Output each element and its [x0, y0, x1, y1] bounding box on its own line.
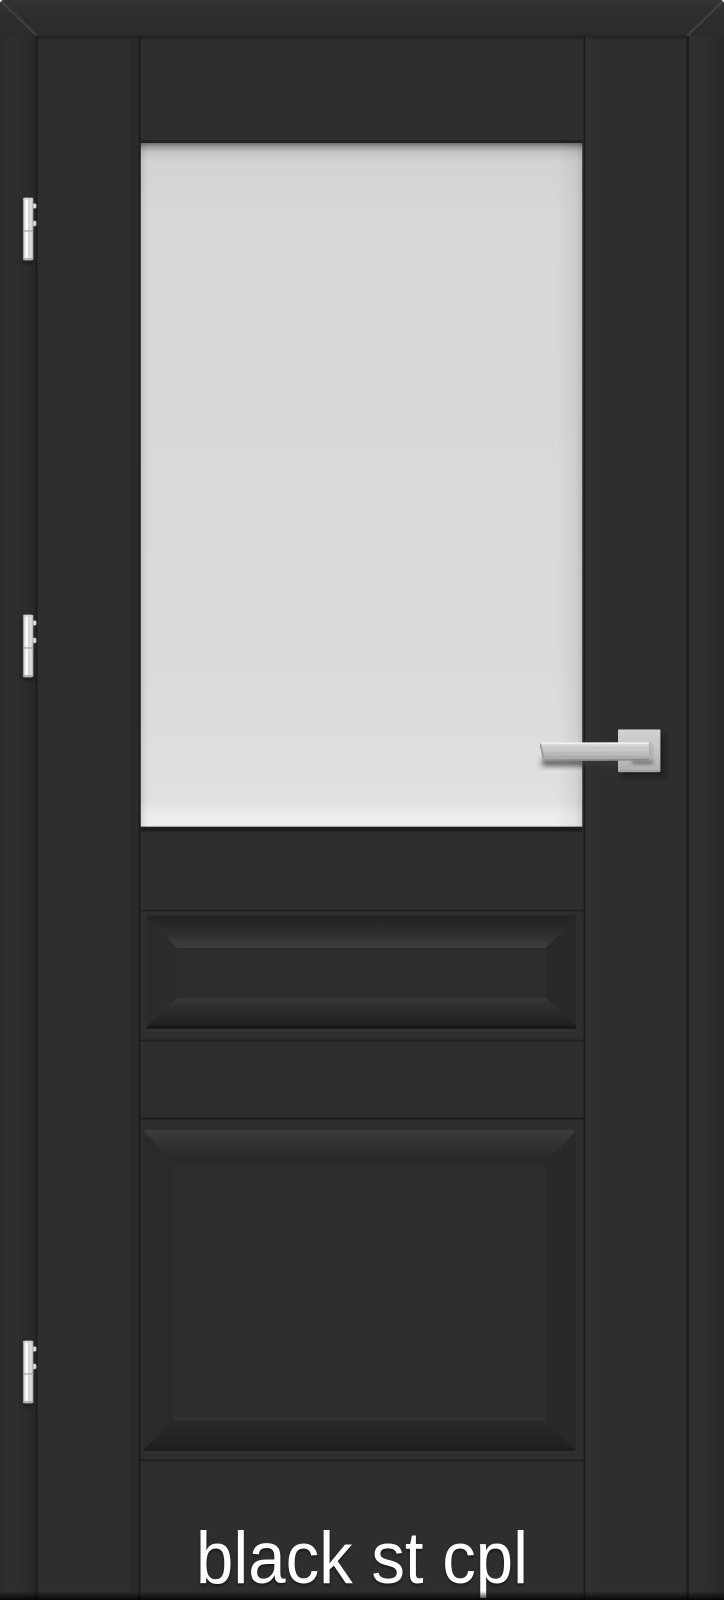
- svg-text:black st cpl: black st cpl: [196, 1518, 528, 1599]
